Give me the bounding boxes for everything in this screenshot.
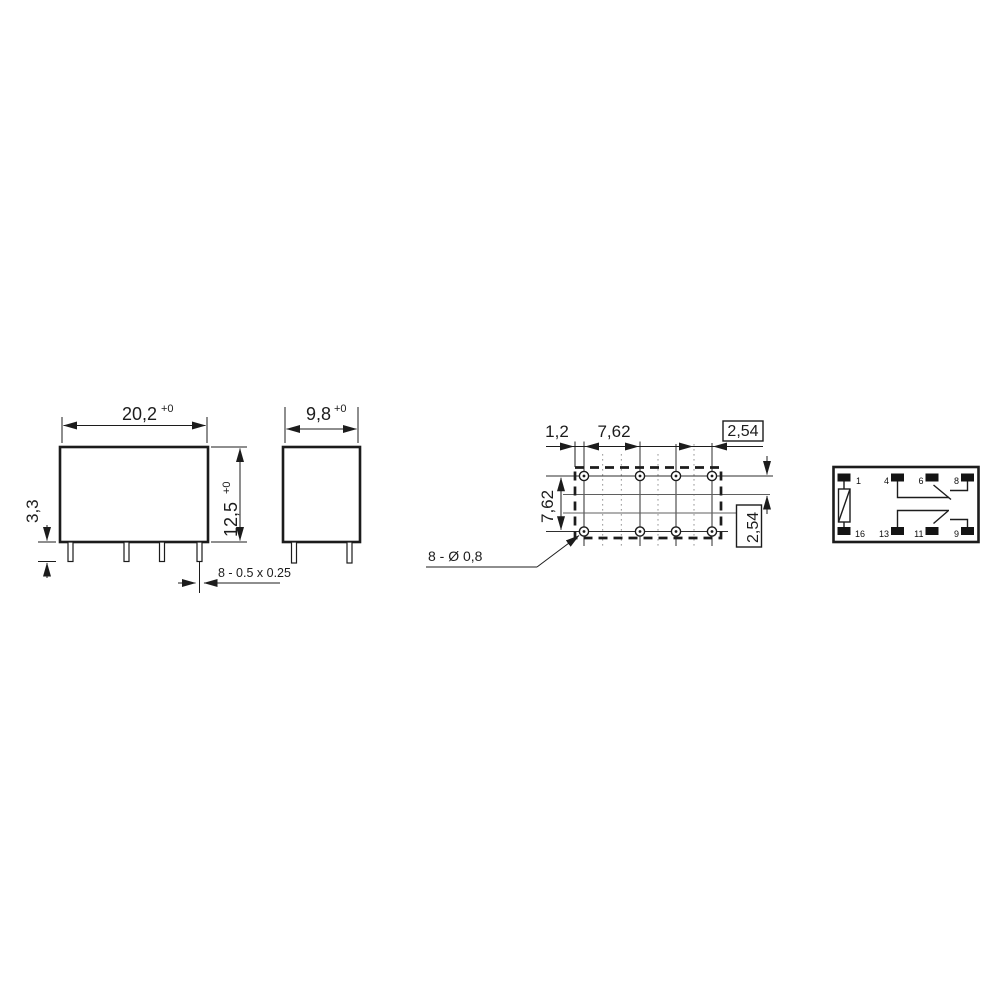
grid-pitch-top-dim: 2,54 — [727, 423, 758, 440]
pad-4 — [891, 474, 904, 482]
pad-1 — [838, 474, 851, 482]
pin — [160, 542, 165, 562]
pin-length-dim: 3,3 — [23, 499, 42, 523]
pin — [68, 542, 73, 562]
leader-arrow — [537, 536, 579, 568]
hole-center — [675, 475, 678, 478]
edge-offset-dim: 1,2 — [545, 422, 569, 441]
relay-dimension-drawing: 20,2 +0 12,5 +0 3,3 8 - 0.5 x 0.25 9,8 +… — [0, 0, 1000, 1000]
pin-number: 8 — [954, 476, 959, 486]
pin-cross-section-label: 8 - 0.5 x 0.25 — [218, 566, 291, 580]
front-width-dim: 20,2 — [122, 404, 157, 424]
body-outline-dashed — [575, 468, 721, 539]
hole-pitch-dim: 7,62 — [597, 422, 630, 441]
pcb-layout: 1,2 7,62 2,54 7,62 2,54 8 - Ø 0,8 — [426, 421, 773, 567]
grid-pitch-right-dim: 2,54 — [745, 512, 762, 543]
pad-11 — [926, 527, 939, 535]
pin — [124, 542, 129, 562]
hole-center — [675, 530, 678, 533]
mounting-holes — [579, 471, 716, 536]
pin-number: 11 — [914, 529, 923, 539]
front-height-tolerance: +0 — [221, 481, 233, 494]
relay-body-side — [283, 447, 360, 542]
pin-number: 13 — [879, 529, 889, 539]
pad-9 — [961, 527, 974, 535]
pad-13 — [891, 527, 904, 535]
pin-number: 4 — [884, 476, 889, 486]
contact-schematic: 1 4 6 8 16 13 11 9 — [834, 467, 979, 542]
hole-center — [711, 475, 714, 478]
side-width-dim: 9,8 — [306, 404, 331, 424]
pin-number: 1 — [856, 476, 861, 486]
pin — [197, 542, 202, 562]
pin-number: 9 — [954, 529, 959, 539]
row-pitch-dim: 7,62 — [538, 490, 557, 523]
side-width-tolerance: +0 — [334, 403, 347, 415]
pad-8 — [961, 474, 974, 482]
hole-center — [583, 475, 586, 478]
hole-center — [583, 530, 586, 533]
front-width-tolerance: +0 — [161, 403, 174, 415]
pin — [347, 542, 352, 563]
side-view: 9,8 +0 — [283, 403, 360, 563]
pin — [292, 542, 297, 563]
drawing-canvas: 20,2 +0 12,5 +0 3,3 8 - 0.5 x 0.25 9,8 +… — [0, 0, 1000, 1000]
pad-16 — [838, 527, 851, 535]
hole-diameter-label: 8 - Ø 0,8 — [428, 548, 483, 564]
hole-center — [639, 475, 642, 478]
pin-number: 16 — [855, 529, 865, 539]
relay-body-front — [60, 447, 208, 542]
hole-center — [711, 530, 714, 533]
pin-number: 6 — [918, 476, 923, 486]
hole-center — [639, 530, 642, 533]
front-view: 20,2 +0 12,5 +0 3,3 8 - 0.5 x 0.25 — [23, 403, 291, 593]
pad-6 — [926, 474, 939, 482]
front-height-dim: 12,5 — [221, 502, 241, 537]
